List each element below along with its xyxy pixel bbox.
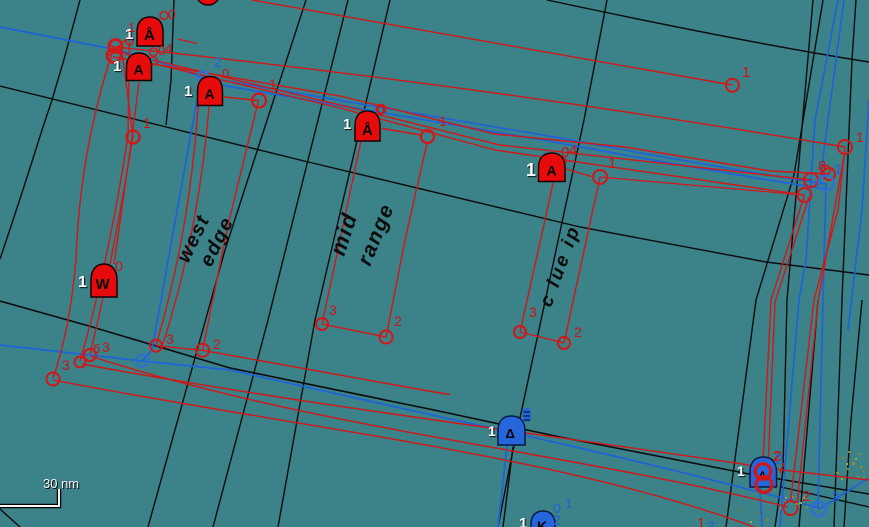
svg-text:1: 1 [143, 115, 151, 131]
svg-text:0: 0 [222, 66, 229, 81]
svg-text:A: A [205, 86, 215, 102]
svg-text:2: 2 [394, 313, 402, 329]
svg-text:0: 0 [115, 258, 123, 274]
svg-text:W: W [96, 276, 111, 293]
svg-text:0: 0 [377, 102, 385, 118]
svg-text:A: A [547, 163, 557, 179]
svg-text:2: 2 [574, 324, 582, 340]
svg-text:1: 1 [343, 116, 351, 133]
svg-text:1: 1 [269, 76, 277, 92]
svg-text:2: 2 [213, 336, 221, 352]
svg-text:2: 2 [802, 488, 810, 505]
svg-text:3: 3 [707, 518, 715, 527]
svg-text:3: 3 [102, 339, 110, 355]
svg-text:0: 0 [168, 6, 176, 22]
svg-text:1: 1 [608, 155, 616, 172]
svg-text:2: 2 [214, 54, 222, 70]
svg-text:30 nm: 30 nm [43, 476, 79, 491]
svg-text:3: 3 [329, 302, 337, 318]
svg-text:6: 6 [93, 341, 100, 356]
svg-text:1: 1 [488, 423, 496, 439]
svg-text:Δ: Δ [506, 426, 515, 441]
svg-text:1: 1 [78, 274, 87, 291]
svg-text:1: 1 [128, 20, 135, 35]
svg-text:3: 3 [62, 357, 70, 373]
svg-text:3: 3 [529, 304, 537, 320]
svg-text:1: 1 [526, 160, 536, 180]
svg-text:Å: Å [144, 27, 155, 44]
svg-text:3: 3 [831, 489, 839, 506]
svg-text:1: 1 [519, 515, 527, 527]
svg-text:2: 2 [775, 451, 783, 468]
svg-text:1: 1 [113, 58, 121, 75]
svg-text:A: A [134, 62, 144, 78]
svg-text:3: 3 [166, 331, 174, 347]
svg-text:K: K [537, 518, 547, 527]
svg-text:1: 1 [439, 113, 447, 129]
svg-text:8: 8 [818, 158, 826, 175]
svg-text:1: 1 [697, 515, 705, 527]
svg-text:1: 1 [856, 129, 864, 145]
svg-text:1: 1 [834, 161, 842, 178]
svg-text:1: 1 [565, 495, 573, 511]
svg-text:Å: Å [362, 122, 373, 139]
svg-text:1: 1 [742, 64, 750, 81]
svg-text:4: 4 [569, 142, 577, 159]
svg-text:1: 1 [737, 463, 745, 479]
svg-text:2: 2 [553, 512, 561, 527]
svg-text:4: 4 [165, 41, 172, 56]
svg-text:1: 1 [184, 83, 192, 100]
